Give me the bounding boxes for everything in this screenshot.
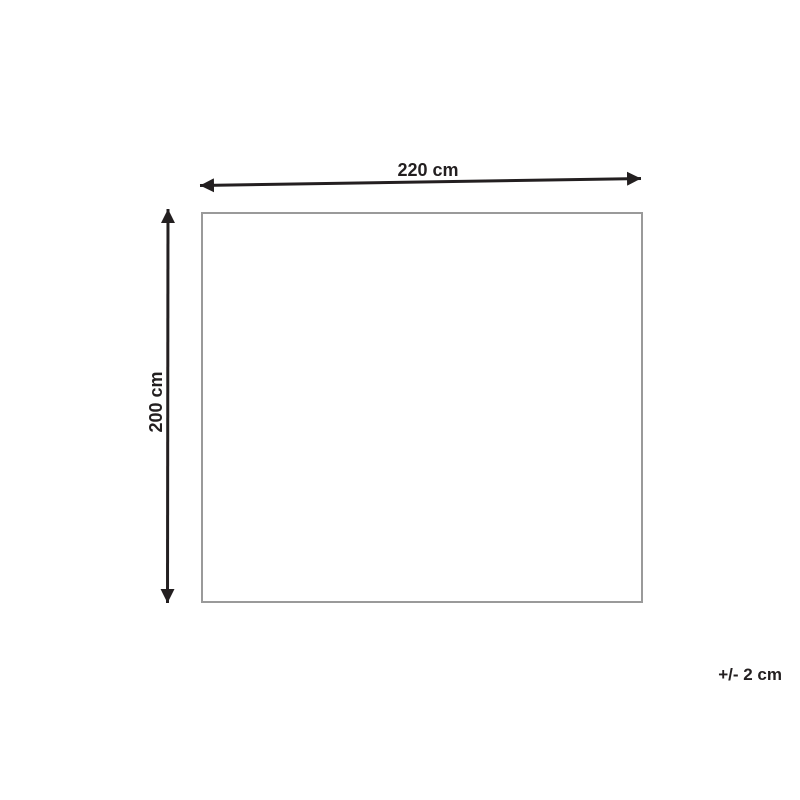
width-dimension-label: 220 cm	[397, 161, 458, 179]
height-dimension-arrow-icon	[168, 209, 169, 603]
product-outline-rectangle	[201, 212, 643, 603]
tolerance-label: +/- 2 cm	[718, 666, 782, 683]
dimension-diagram: 220 cm 200 cm +/- 2 cm	[0, 0, 800, 800]
height-dimension-label: 200 cm	[147, 371, 165, 432]
